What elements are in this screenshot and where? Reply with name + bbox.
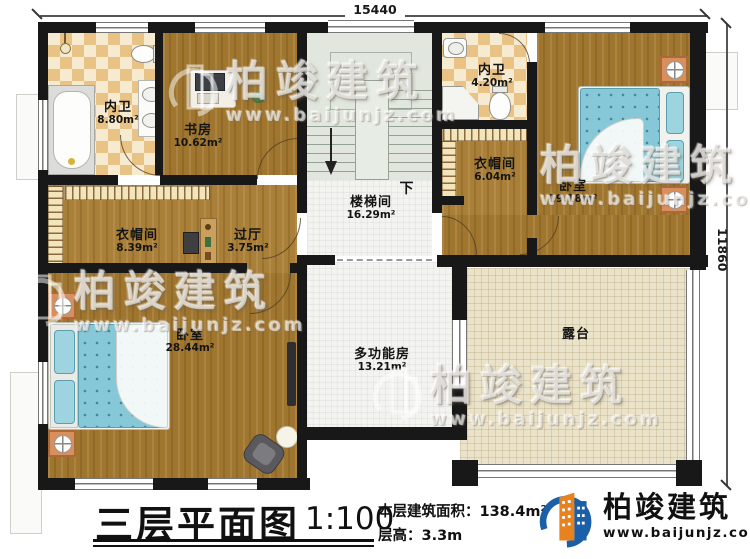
cabinet-item bbox=[205, 224, 211, 230]
down-text: 下 bbox=[396, 182, 418, 197]
window bbox=[545, 22, 630, 33]
stair-center-rail bbox=[355, 80, 389, 180]
room-name: 书房 bbox=[166, 124, 230, 138]
room-area: 6.04m² bbox=[460, 172, 530, 184]
hall-stool bbox=[183, 232, 199, 254]
room-area: 10.62m² bbox=[166, 138, 230, 150]
nightstand bbox=[660, 186, 688, 213]
room-name: 过厅 bbox=[216, 229, 280, 243]
brand-website: www.baijunjz.com bbox=[603, 525, 750, 541]
pillow bbox=[54, 380, 75, 424]
room-area: 3.75m² bbox=[216, 243, 280, 255]
clothes-rack bbox=[48, 186, 63, 270]
room-area: 8.80m² bbox=[86, 115, 150, 127]
tv-icon bbox=[287, 342, 296, 406]
room-name: 衣帽间 bbox=[103, 229, 171, 243]
brand-logo: 柏竣建筑 www.baijunjz.com bbox=[535, 486, 750, 548]
window bbox=[195, 22, 265, 33]
wall-cloakroom-bedroom-stub bbox=[527, 238, 537, 255]
room-name: 多功能房 bbox=[340, 348, 424, 362]
title-underline-thin bbox=[93, 545, 374, 547]
window bbox=[208, 478, 257, 490]
dimension-height: 11860 bbox=[714, 228, 730, 272]
room-area: 13.21m² bbox=[340, 362, 424, 374]
nightstand bbox=[48, 430, 76, 457]
room-area: 28.44m² bbox=[158, 343, 222, 355]
corridor-strip-floor bbox=[442, 215, 690, 255]
stair-direction-line bbox=[330, 128, 332, 162]
wall-bath1-bottom-b bbox=[160, 175, 257, 185]
wall-stairhall-bottom bbox=[297, 255, 335, 265]
room-label-hallway: 过厅 3.75m² bbox=[216, 229, 280, 255]
room-area: 8.39m² bbox=[103, 243, 171, 255]
window bbox=[75, 478, 153, 490]
terrace-column bbox=[452, 460, 478, 486]
wall-bedroom-left-right bbox=[297, 258, 307, 488]
wall-bath1-study bbox=[155, 33, 163, 175]
lamp-icon bbox=[666, 191, 684, 209]
exterior-sill-right bbox=[704, 52, 738, 110]
nightstand bbox=[48, 292, 76, 319]
room-name: 卧室 bbox=[541, 180, 605, 194]
room-name: 衣帽间 bbox=[460, 158, 530, 172]
lamp-icon bbox=[54, 435, 72, 453]
dimension-tick bbox=[31, 8, 42, 19]
floor-height-text: 层高：3.3m bbox=[378, 524, 462, 545]
wall-multiroom-right-b bbox=[452, 388, 467, 440]
room-label-bedroom-left: 卧室 28.44m² bbox=[158, 329, 222, 355]
room-label-stairwell: 楼梯间 16.29m² bbox=[332, 196, 410, 222]
pillow bbox=[54, 330, 75, 374]
desk bbox=[190, 70, 236, 108]
bathtub bbox=[48, 85, 95, 175]
wall-cloakroom-right-stub bbox=[440, 196, 464, 205]
wall-cloakroom-bedroom bbox=[527, 62, 537, 215]
wall-bath2-bottom bbox=[437, 120, 537, 129]
pillow bbox=[666, 140, 684, 182]
window bbox=[38, 362, 48, 424]
wall-bath1-bottom-a bbox=[38, 175, 118, 185]
wall-bedroom-left-bottom-c bbox=[257, 478, 310, 490]
wall-hall-bedroom-b bbox=[290, 263, 302, 273]
wall-stair-right bbox=[432, 22, 442, 213]
room-name: 内卫 bbox=[460, 64, 524, 78]
terrace-column bbox=[676, 460, 702, 486]
brand-logo-texts: 柏竣建筑 www.baijunjz.com bbox=[603, 493, 750, 541]
room-label-bath-upper-right: 内卫 4.20m² bbox=[460, 64, 524, 90]
title-underline-thick bbox=[93, 539, 374, 542]
keyboard-icon bbox=[197, 93, 219, 104]
room-area: 16.29m² bbox=[332, 210, 410, 222]
toilet-upper-right bbox=[489, 92, 511, 120]
lamp-icon bbox=[54, 297, 72, 315]
wall-bedroom-left-bottom-a bbox=[38, 478, 75, 490]
terrace-railing-bottom bbox=[478, 464, 676, 478]
room-name: 楼梯间 bbox=[332, 196, 410, 210]
floor-plan-canvas: 内卫 8.80m² 书房 10.62m² 内卫 4.20m² 衣帽间 6.04m… bbox=[0, 0, 750, 559]
plant-icon bbox=[252, 92, 265, 103]
window bbox=[96, 22, 148, 33]
shower-head-icon bbox=[60, 43, 71, 54]
room-area: 19.18m² bbox=[541, 194, 605, 206]
nightstand bbox=[660, 56, 688, 83]
armchair-seat bbox=[251, 441, 278, 467]
computer-monitor-icon bbox=[195, 73, 225, 91]
floor-area-text: 本层建筑面积：138.4m² bbox=[378, 500, 547, 521]
lamp-icon bbox=[666, 61, 684, 79]
multi-room-floor bbox=[307, 262, 452, 427]
room-label-cloakroom-right: 衣帽间 6.04m² bbox=[460, 158, 530, 184]
dimension-width: 15440 bbox=[345, 2, 405, 17]
hall-cabinet bbox=[200, 218, 217, 266]
window bbox=[328, 20, 414, 33]
room-name: 卧室 bbox=[158, 329, 222, 343]
terrace-floor bbox=[460, 268, 700, 466]
room-label-terrace: 露台 bbox=[544, 328, 608, 342]
cabinet-item bbox=[205, 237, 211, 247]
clothes-rack bbox=[442, 141, 456, 199]
wall-bedroom-right-bottom bbox=[437, 255, 708, 267]
brand-logo-icon bbox=[535, 486, 595, 548]
wall-hall-bedroom-a bbox=[38, 263, 247, 273]
pillow bbox=[666, 92, 684, 134]
wall-multiroom-right-a bbox=[452, 266, 467, 320]
room-label-cloakroom-left: 衣帽间 8.39m² bbox=[103, 229, 171, 255]
stair-treads-right bbox=[389, 90, 432, 180]
clothes-rack bbox=[442, 127, 527, 141]
room-label-bath-upper-left: 内卫 8.80m² bbox=[86, 101, 150, 127]
bathtub-faucet bbox=[68, 158, 75, 165]
cabinet-item bbox=[205, 252, 211, 260]
dimension-tick bbox=[699, 8, 710, 19]
room-area: 4.20m² bbox=[460, 78, 524, 90]
wall-right bbox=[690, 22, 706, 270]
room-label-multi-room: 多功能房 13.21m² bbox=[340, 348, 424, 374]
stair-down-arrow bbox=[325, 161, 337, 175]
stair-down-label: 下 bbox=[396, 182, 418, 197]
sink-upper-right bbox=[443, 38, 467, 58]
terrace-railing-right bbox=[686, 270, 700, 460]
wall-study-stair bbox=[297, 22, 307, 213]
brand-name: 柏竣建筑 bbox=[603, 493, 750, 522]
room-name: 内卫 bbox=[86, 101, 150, 115]
wall-multiroom-bottom bbox=[300, 427, 460, 440]
window-multiroom bbox=[452, 320, 467, 388]
wall-bedroom-left-bottom-b bbox=[153, 478, 208, 490]
clothes-rack bbox=[64, 186, 210, 200]
room-name: 露台 bbox=[544, 328, 608, 342]
opening-dashed-line bbox=[337, 259, 432, 261]
room-label-bedroom-right: 卧室 19.18m² bbox=[541, 180, 605, 206]
sink-basin bbox=[448, 42, 464, 55]
room-label-study: 书房 10.62m² bbox=[166, 124, 230, 150]
window bbox=[38, 100, 48, 170]
